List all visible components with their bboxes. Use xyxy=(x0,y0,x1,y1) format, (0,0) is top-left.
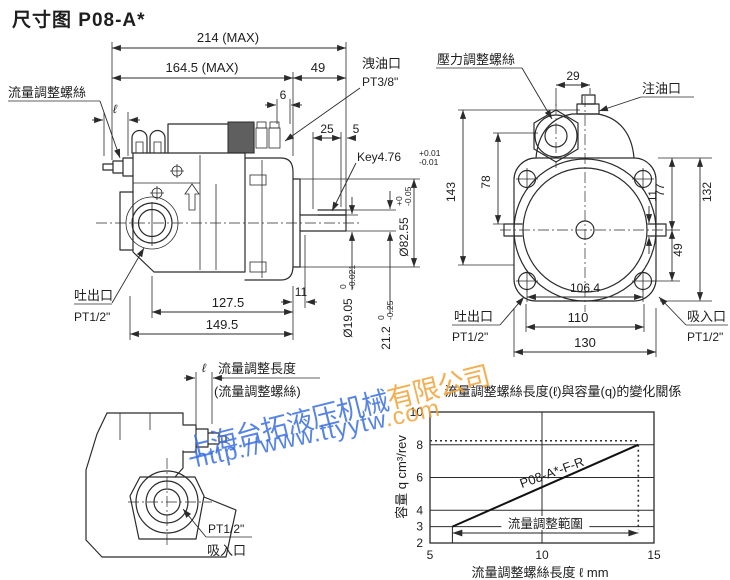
pressure-screw-label: 壓力調整螺絲 xyxy=(437,52,515,67)
dim-127-5: 127.5 xyxy=(212,295,245,310)
dim-49: 49 xyxy=(671,243,685,257)
bolt-center-mark xyxy=(150,164,184,200)
dim-106-4: 106.4 xyxy=(570,281,600,295)
pilot-diameter: Ø82.55 xyxy=(397,217,411,257)
capacity-chart: 流量調整螺絲長度(ℓ)與容量(q)的變化關係 234681051015P08-A… xyxy=(394,384,681,580)
inlet-port-label-adjust: 吸入口 xyxy=(207,543,246,558)
drain-port-size: PT3/8" xyxy=(362,75,398,89)
dim-130: 130 xyxy=(574,335,596,350)
adjust-screw-label: (流量調整螺絲) xyxy=(214,384,301,399)
dim-5: 5 xyxy=(353,122,360,136)
series-line xyxy=(452,445,638,527)
dim-body-length: 164.5 (MAX) xyxy=(166,60,239,75)
key-label: Key4.76 xyxy=(357,150,401,164)
y-tick-label: 8 xyxy=(416,438,423,452)
dim-overall-length: 214 (MAX) xyxy=(197,30,259,45)
dim-29: 29 xyxy=(566,69,580,83)
drain-port-label: 洩油口 xyxy=(362,56,401,71)
side-view: 流量調整螺絲 ℓ 214 (MAX) 164.5 (MAX) 49 6 洩油口 … xyxy=(8,30,441,350)
outlet-port-size: PT1/2" xyxy=(74,310,110,324)
dim-149-5: 149.5 xyxy=(206,317,239,332)
dimension-drawing: 尺寸图 P08-A* xyxy=(0,0,730,580)
chart-x-axis-label: 流量調整螺絲長度 ℓ mm xyxy=(471,565,608,580)
ell-adjust-label: ℓ xyxy=(202,361,207,375)
y-tick-label: 10 xyxy=(410,405,424,419)
inlet-port-size-front: PT1/2" xyxy=(687,330,723,344)
chart-generated: 234681051015P08-A*-F-R流量調整範圍 xyxy=(410,405,661,562)
adjust-view: ℓ 流量調整長度 (流量調整螺絲) PT1/2" 吸入口 xyxy=(86,361,320,558)
flow-screw-label: 流量調整螺絲 xyxy=(8,85,86,100)
side-view-outline xyxy=(96,122,360,280)
drawing-sheet: 尺寸图 P08-A* xyxy=(0,0,730,580)
outlet-port-size-front: PT1/2" xyxy=(452,330,488,344)
page-title: 尺寸图 P08-A* xyxy=(12,8,146,31)
dim-78: 78 xyxy=(479,175,493,189)
y-tick-label: 6 xyxy=(416,471,423,485)
pilot-tol-dn: -0.05 xyxy=(403,186,413,206)
y-tick-label: 2 xyxy=(416,536,423,550)
ell-dim-label: ℓ xyxy=(113,102,118,116)
dim-11: 11 xyxy=(295,285,308,299)
y-tick-label: 3 xyxy=(416,520,423,534)
inlet-port-label-front: 吸入口 xyxy=(687,309,726,324)
dim-11-front: 11 xyxy=(647,190,659,201)
front-view-outline xyxy=(500,95,672,312)
dim-25: 25 xyxy=(320,122,334,136)
dim-143: 143 xyxy=(444,182,458,202)
dim-132: 132 xyxy=(700,182,714,202)
front-view: 壓力調整螺絲 29 注油口 78 143 77 11 49 132 106.4 … xyxy=(436,52,728,357)
inlet-port-size-adjust: PT1/2" xyxy=(208,522,244,536)
shaft-tol-dn: -0.021 xyxy=(347,265,357,289)
dim-6: 6 xyxy=(280,88,287,102)
key-height: 21.2 xyxy=(379,326,393,350)
outlet-port-label-front: 吐出口 xyxy=(454,309,493,324)
outlet-port-label: 吐出口 xyxy=(74,288,113,303)
x-tick-label: 15 xyxy=(647,548,661,562)
y-tick-label: 4 xyxy=(416,503,423,517)
key-tol-dn: -0.01 xyxy=(419,157,439,167)
range-label: 流量調整範圍 xyxy=(508,516,583,531)
adjust-length-label: 流量調整長度 xyxy=(218,361,296,376)
x-tick-label: 10 xyxy=(535,548,549,562)
shaft-diameter: Ø19.05 xyxy=(341,298,355,338)
dim-rear-length: 49 xyxy=(311,60,325,75)
chart-y-axis-label: 容量 q cm³/rev xyxy=(394,435,409,519)
x-tick-label: 5 xyxy=(427,548,434,562)
key-height-tol-dn: -0.25 xyxy=(385,300,395,320)
dim-110: 110 xyxy=(568,310,589,325)
chart-title: 流量調整螺絲長度(ℓ)與容量(q)的變化關係 xyxy=(445,384,682,399)
rotation-arrow-icon xyxy=(185,184,199,210)
fill-port-label: 注油口 xyxy=(642,81,681,96)
